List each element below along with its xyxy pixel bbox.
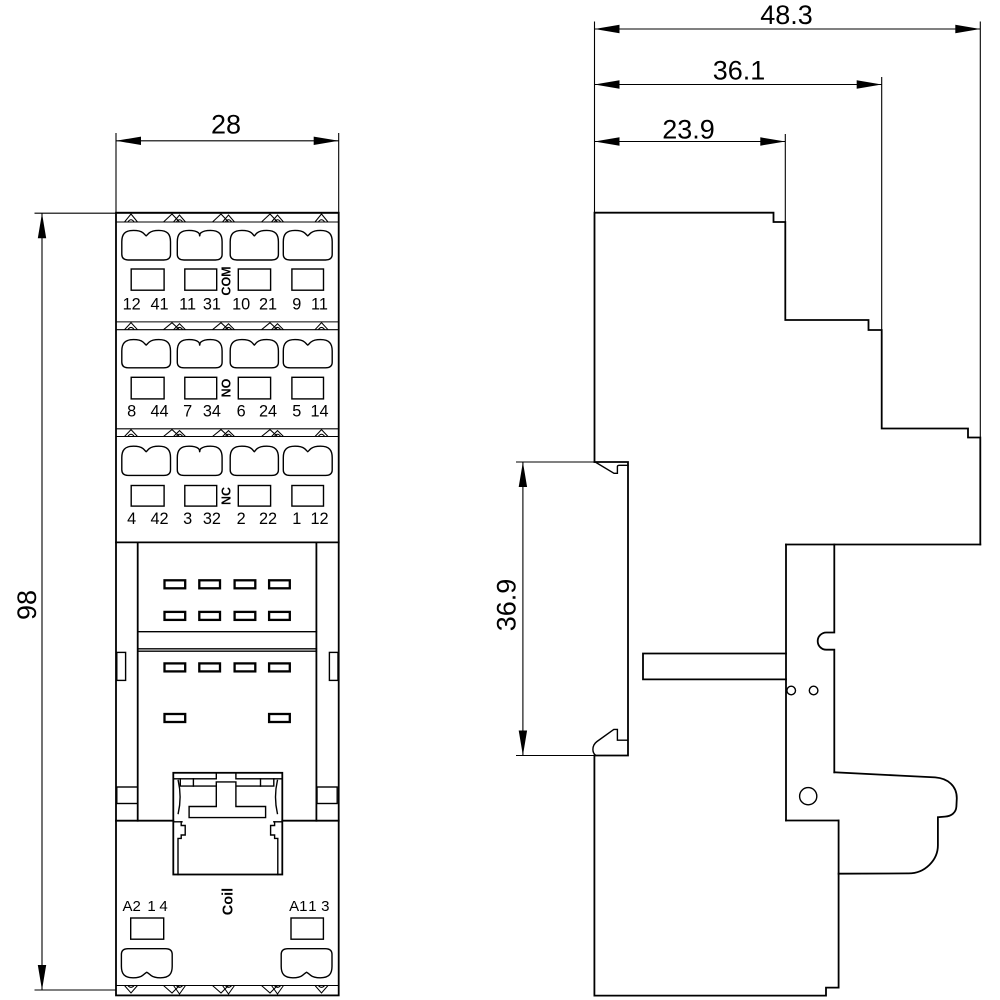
svg-text:2: 2: [237, 510, 246, 528]
svg-text:10: 10: [232, 295, 250, 313]
svg-text:1: 1: [308, 898, 316, 915]
svg-text:22: 22: [259, 510, 277, 528]
svg-text:4: 4: [127, 510, 136, 528]
svg-text:98: 98: [12, 590, 42, 620]
svg-text:23.9: 23.9: [662, 114, 715, 144]
svg-text:36.9: 36.9: [492, 579, 522, 632]
svg-text:COM: COM: [219, 266, 233, 295]
svg-text:48.3: 48.3: [760, 0, 813, 30]
svg-text:A1: A1: [289, 898, 307, 915]
svg-text:21: 21: [259, 295, 277, 313]
svg-text:1: 1: [147, 898, 155, 915]
svg-text:6: 6: [237, 402, 246, 420]
svg-text:3: 3: [183, 510, 192, 528]
svg-text:12: 12: [123, 295, 141, 313]
svg-text:31: 31: [203, 295, 221, 313]
svg-text:11: 11: [311, 295, 328, 313]
svg-text:4: 4: [159, 898, 167, 915]
svg-text:24: 24: [259, 402, 277, 420]
svg-text:11: 11: [179, 295, 196, 313]
svg-text:NO: NO: [219, 378, 233, 397]
svg-text:9: 9: [292, 295, 301, 313]
svg-text:34: 34: [203, 402, 221, 420]
svg-text:42: 42: [150, 510, 168, 528]
svg-text:44: 44: [150, 402, 168, 420]
svg-text:3: 3: [321, 898, 329, 915]
svg-text:7: 7: [183, 402, 192, 420]
svg-text:32: 32: [203, 510, 221, 528]
svg-text:5: 5: [292, 402, 301, 420]
svg-text:41: 41: [150, 295, 168, 313]
svg-text:1: 1: [292, 510, 301, 528]
svg-text:8: 8: [127, 402, 136, 420]
svg-text:Coil: Coil: [220, 888, 236, 915]
svg-text:14: 14: [310, 402, 328, 420]
svg-text:28: 28: [211, 109, 241, 139]
svg-text:NC: NC: [219, 487, 233, 505]
svg-text:12: 12: [310, 510, 328, 528]
svg-text:A2: A2: [123, 898, 141, 915]
svg-text:36.1: 36.1: [713, 56, 766, 86]
